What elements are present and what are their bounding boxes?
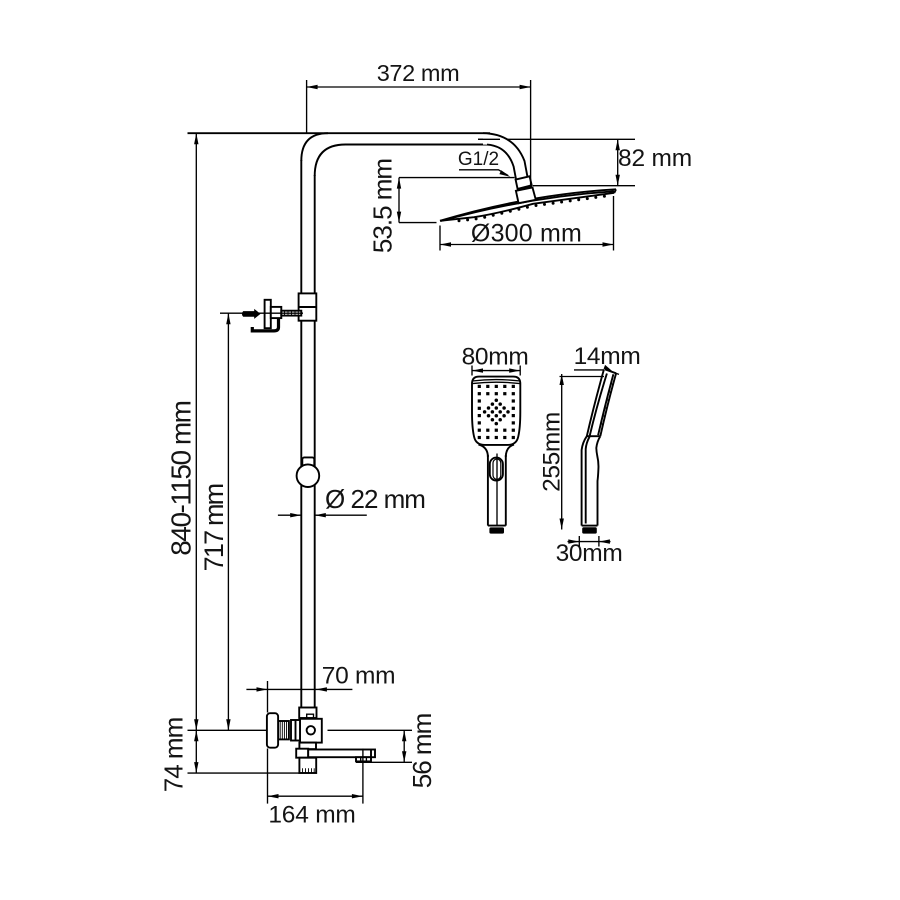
- svg-text:164 mm: 164 mm: [268, 802, 355, 829]
- svg-text:G1/2: G1/2: [458, 149, 499, 170]
- svg-text:Ø300 mm: Ø300 mm: [471, 220, 582, 248]
- svg-text:14mm: 14mm: [574, 343, 641, 370]
- svg-text:Ø 22 mm: Ø 22 mm: [325, 484, 425, 514]
- svg-text:82 mm: 82 mm: [618, 145, 692, 172]
- svg-text:840-1150 mm: 840-1150 mm: [166, 401, 197, 555]
- svg-text:56 mm: 56 mm: [407, 714, 437, 788]
- svg-text:74 mm: 74 mm: [159, 718, 189, 792]
- svg-text:70 mm: 70 mm: [322, 663, 395, 690]
- svg-text:717 mm: 717 mm: [199, 484, 229, 571]
- svg-text:372 mm: 372 mm: [377, 60, 460, 86]
- svg-text:53.5 mm: 53.5 mm: [368, 159, 398, 253]
- svg-text:30mm: 30mm: [556, 540, 623, 567]
